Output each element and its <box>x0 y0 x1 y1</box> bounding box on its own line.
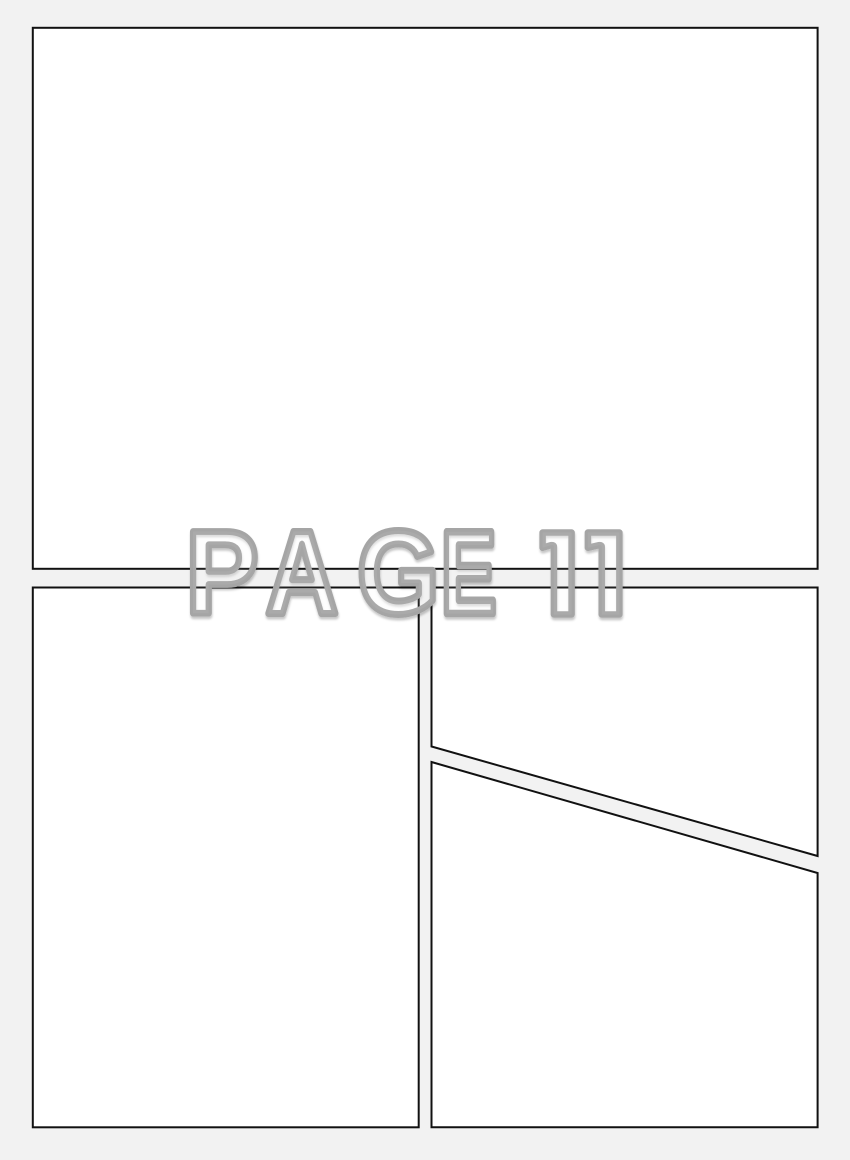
svg-text:E: E <box>441 506 497 639</box>
svg-text:P: P <box>186 507 259 639</box>
svg-text:G: G <box>357 506 439 639</box>
svg-text:A: A <box>266 506 338 639</box>
